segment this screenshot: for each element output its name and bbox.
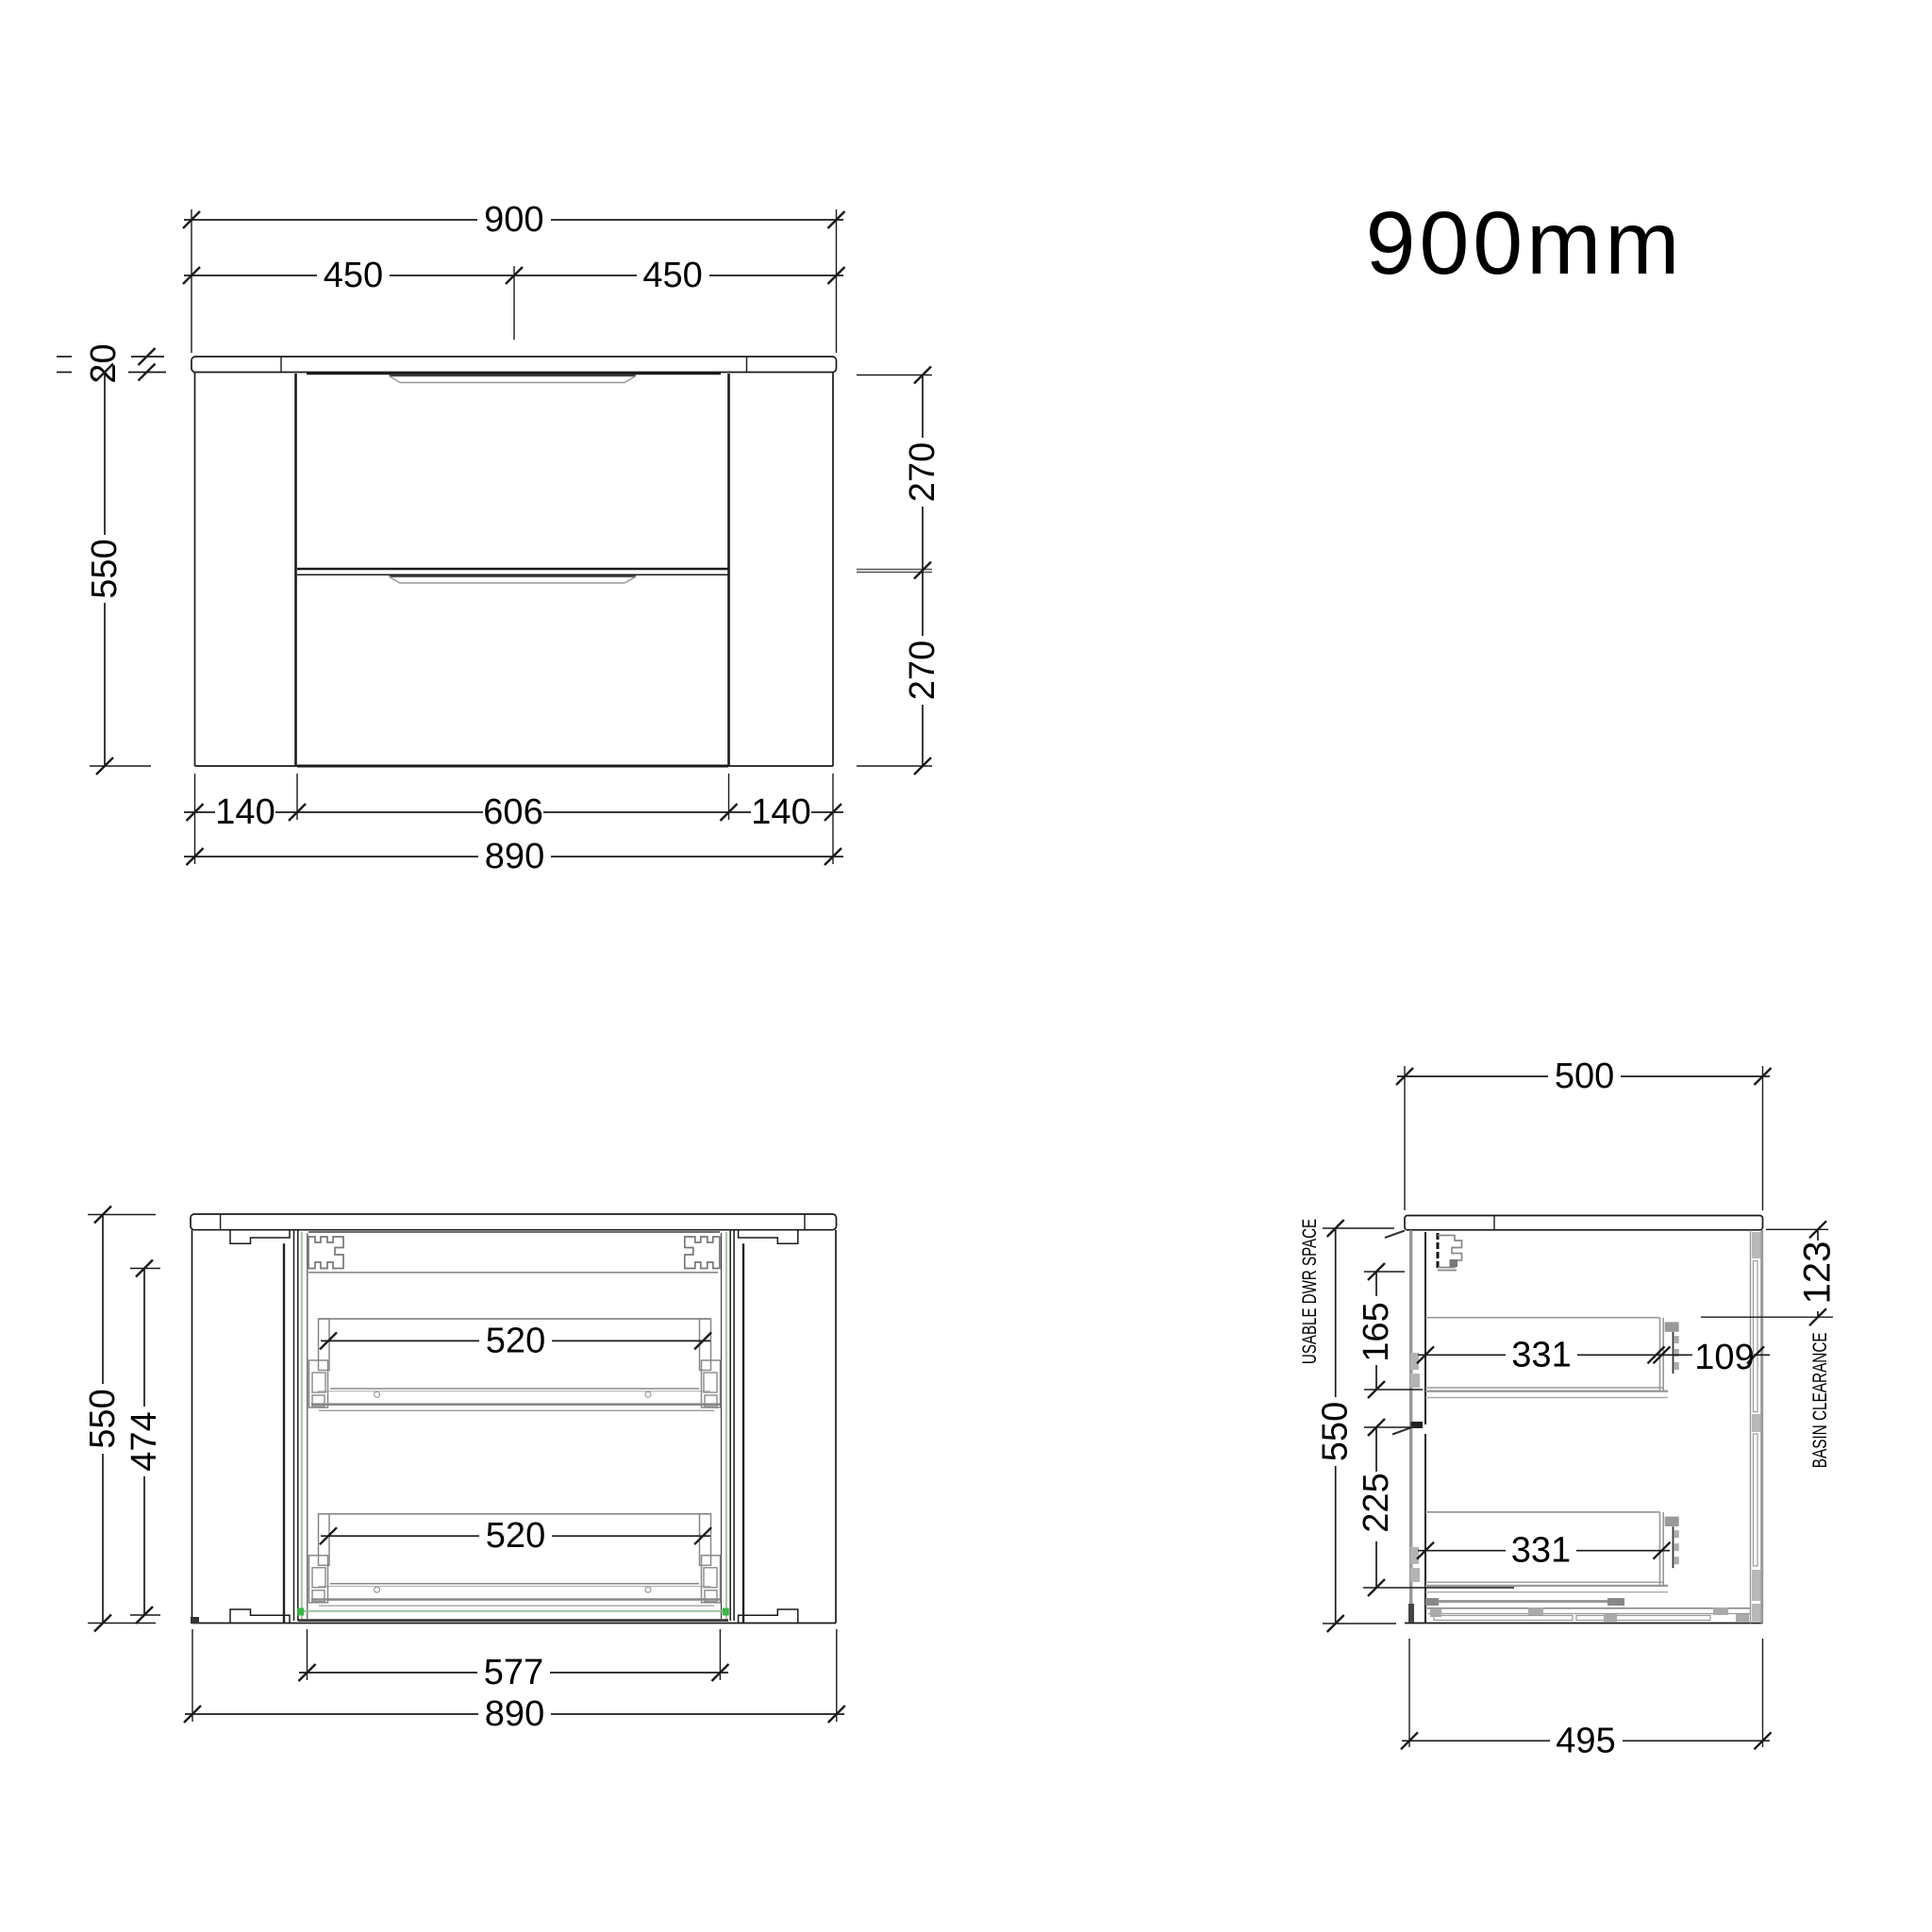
svg-text:890: 890 — [485, 1694, 544, 1734]
svg-text:520: 520 — [486, 1516, 545, 1556]
svg-text:450: 450 — [642, 256, 702, 295]
svg-text:331: 331 — [1511, 1531, 1571, 1571]
svg-text:500: 500 — [1555, 1057, 1614, 1096]
svg-text:270: 270 — [903, 442, 942, 502]
svg-text:606: 606 — [483, 792, 542, 832]
svg-text:165: 165 — [1357, 1302, 1396, 1361]
svg-text:900: 900 — [484, 200, 543, 240]
svg-text:900mm: 900mm — [1366, 193, 1684, 293]
svg-text:USABLE DWR SPACE: USABLE DWR SPACE — [1297, 1219, 1320, 1364]
svg-text:123: 123 — [1797, 1241, 1839, 1305]
svg-text:225: 225 — [1357, 1473, 1396, 1532]
svg-text:BASIN CLEARANCE: BASIN CLEARANCE — [1807, 1332, 1830, 1468]
svg-text:495: 495 — [1556, 1721, 1615, 1760]
svg-text:331: 331 — [1511, 1335, 1571, 1374]
svg-text:140: 140 — [215, 792, 275, 832]
svg-text:550: 550 — [85, 539, 125, 598]
svg-text:520: 520 — [486, 1321, 545, 1360]
svg-text:550: 550 — [1316, 1402, 1356, 1461]
svg-text:109: 109 — [1694, 1338, 1754, 1377]
svg-text:550: 550 — [83, 1389, 123, 1448]
svg-text:577: 577 — [484, 1653, 543, 1692]
svg-text:450: 450 — [324, 256, 383, 295]
svg-text:474: 474 — [125, 1411, 164, 1471]
svg-text:20: 20 — [84, 343, 124, 383]
svg-text:890: 890 — [485, 837, 544, 876]
svg-text:270: 270 — [903, 641, 942, 700]
svg-text:140: 140 — [751, 792, 810, 832]
